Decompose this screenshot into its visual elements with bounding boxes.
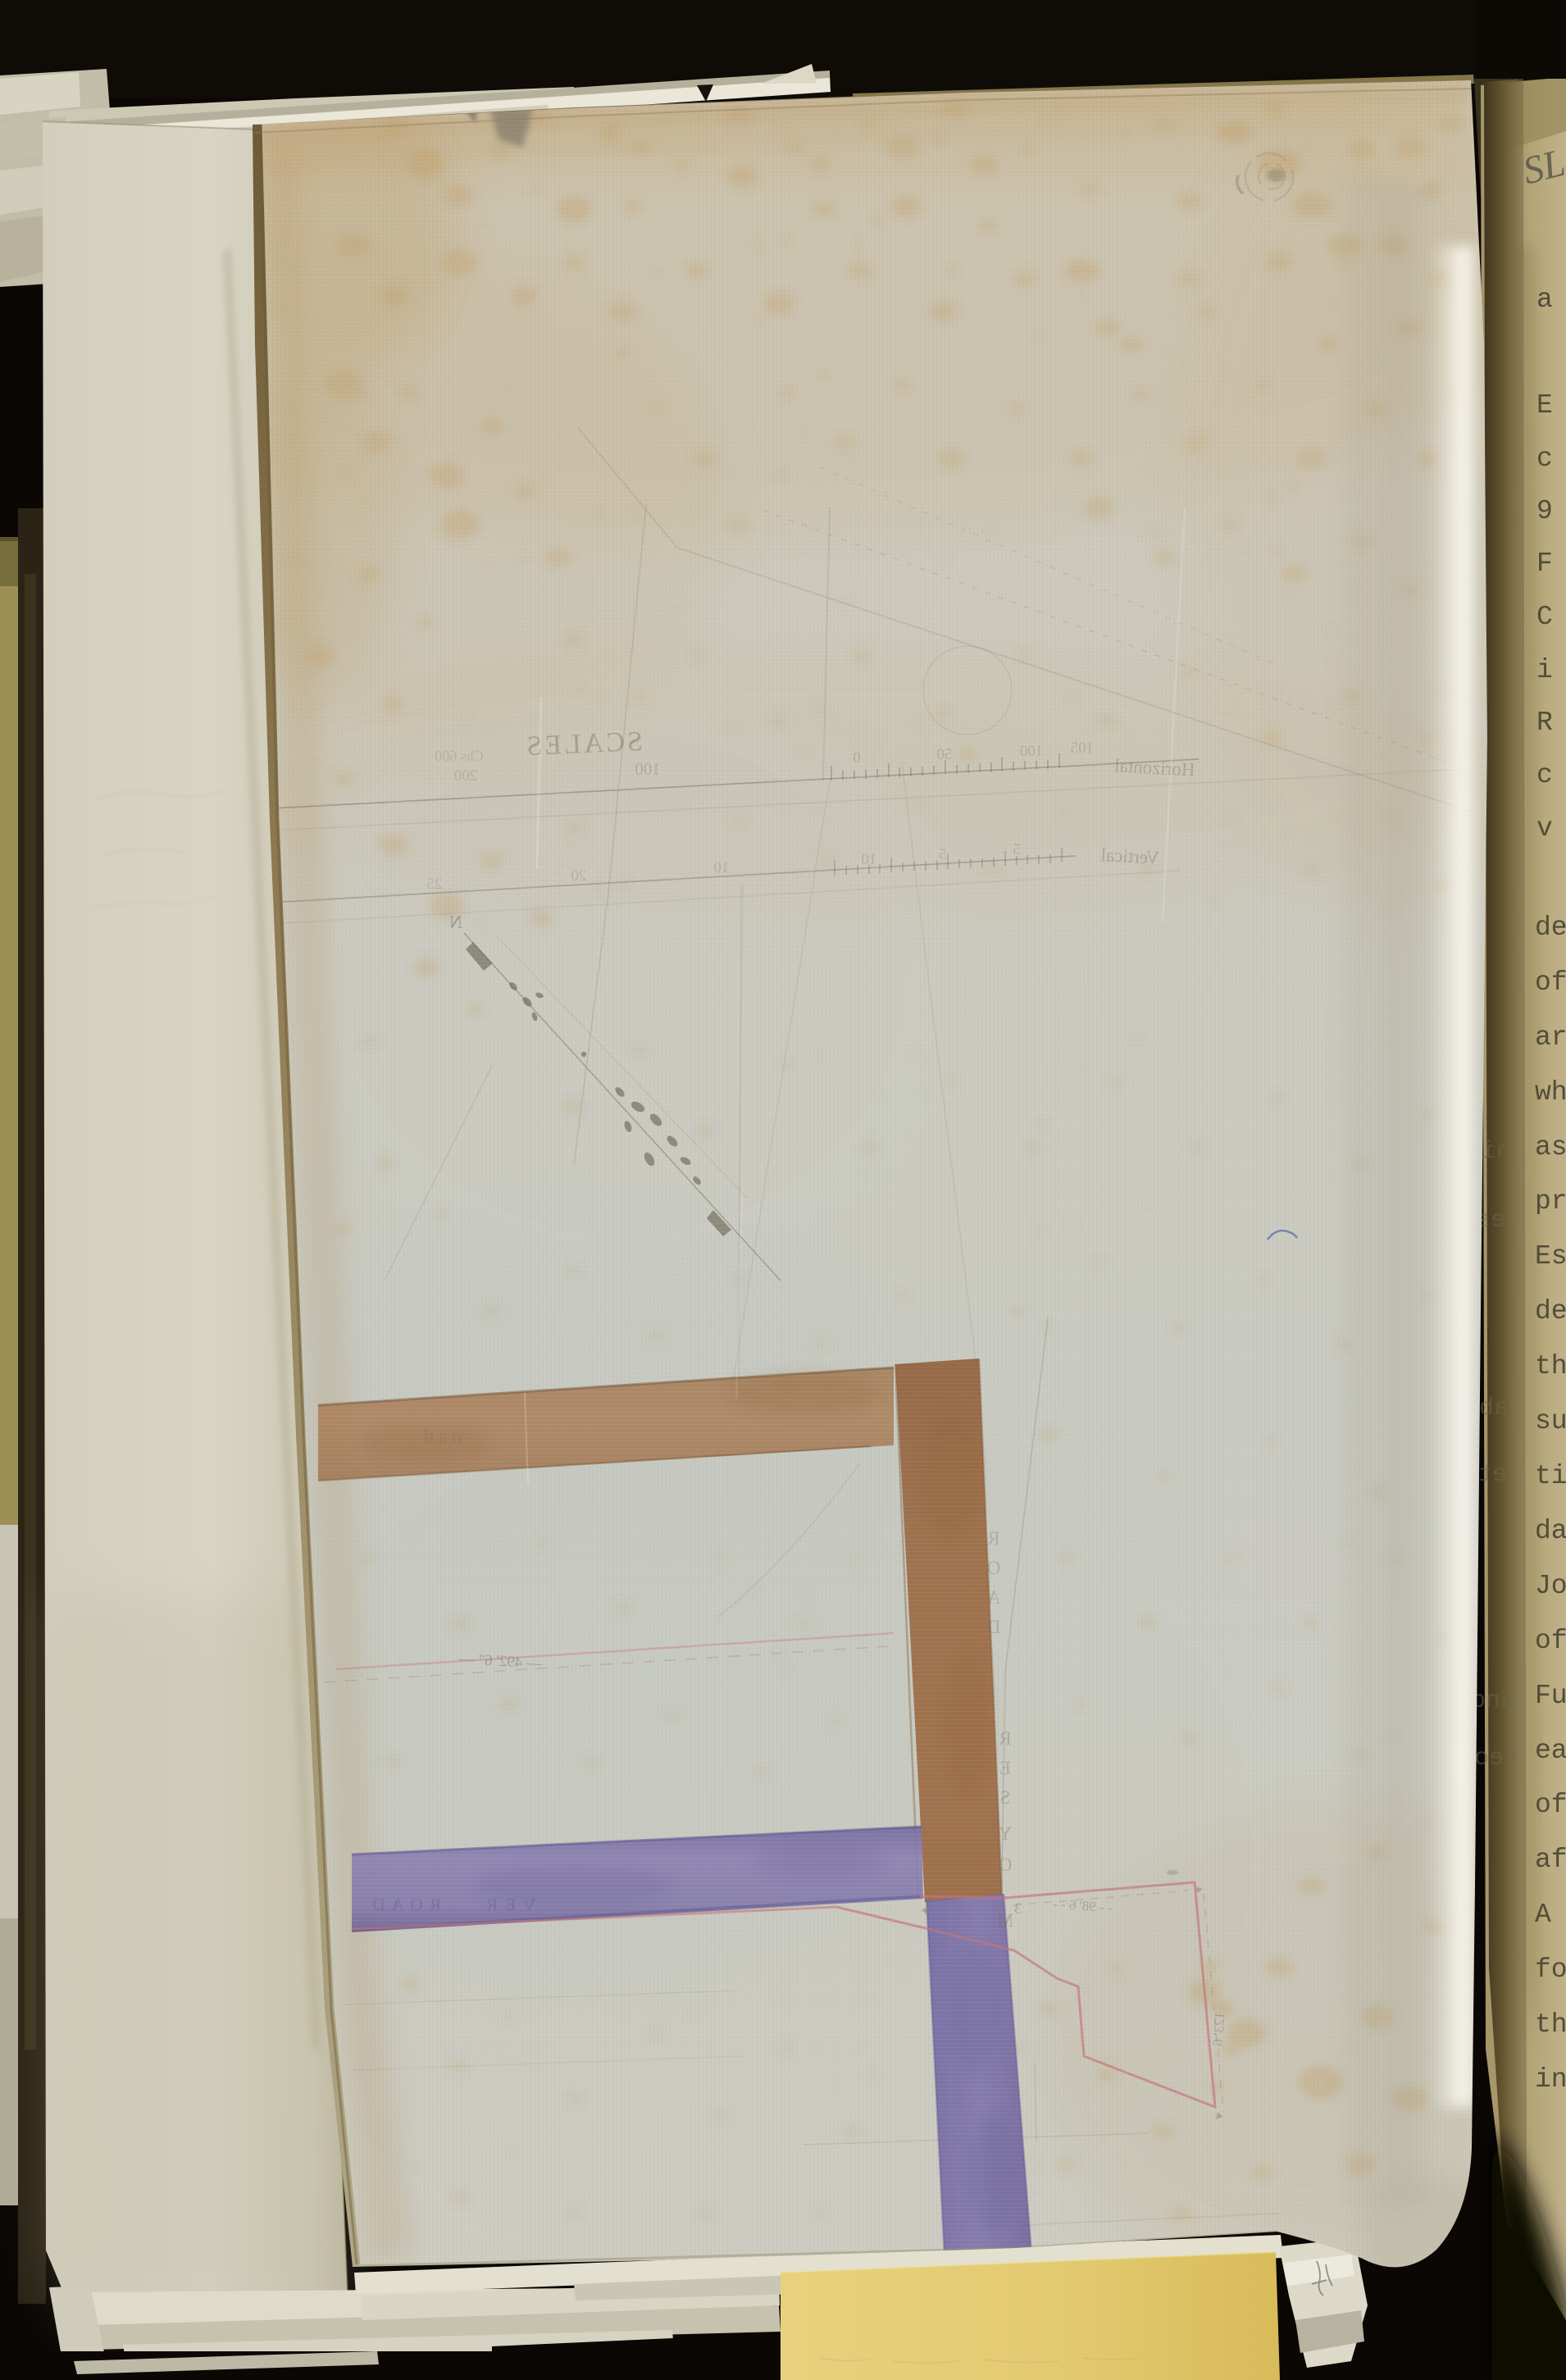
- svg-text:th: th: [1535, 2009, 1566, 2040]
- svg-text:F: F: [1536, 548, 1553, 579]
- svg-text:ti: ti: [1535, 1461, 1566, 1491]
- svg-text:a: a: [1536, 284, 1553, 315]
- svg-text:da: da: [1535, 1516, 1566, 1546]
- svg-text:C: C: [1536, 602, 1553, 632]
- svg-text:as: as: [1535, 1132, 1566, 1163]
- svg-text:de: de: [1535, 1296, 1566, 1327]
- svg-text:E: E: [1536, 390, 1553, 421]
- svg-text:pr: pr: [1535, 1186, 1566, 1217]
- svg-text:ni: ni: [1482, 1138, 1511, 1166]
- svg-text:of: of: [1535, 1626, 1566, 1656]
- svg-text:of: of: [1535, 967, 1566, 998]
- svg-text:R: R: [1536, 708, 1553, 738]
- svg-text:Jo: Jo: [1535, 1571, 1566, 1601]
- svg-text:ea: ea: [1535, 1736, 1566, 1766]
- svg-text:fo: fo: [1535, 1955, 1566, 1985]
- svg-text:Es: Es: [1535, 1241, 1566, 1272]
- svg-text:ab: ab: [1479, 1395, 1509, 1422]
- svg-text:Fu: Fu: [1535, 1681, 1566, 1711]
- svg-text:et: et: [1477, 1461, 1507, 1489]
- svg-text:de: de: [1535, 912, 1566, 943]
- svg-text:th: th: [1535, 1351, 1566, 1381]
- svg-text:A N: A N: [1535, 1900, 1566, 1930]
- svg-text:wh: wh: [1535, 1077, 1566, 1108]
- svg-text:i: i: [1536, 655, 1553, 685]
- svg-text:and: and: [1471, 1687, 1515, 1715]
- svg-text:su: su: [1535, 1406, 1566, 1436]
- svg-text:c: c: [1536, 444, 1553, 474]
- svg-text:v: v: [1536, 813, 1553, 844]
- svg-text:in: in: [1535, 2064, 1566, 2095]
- svg-text:ar: ar: [1535, 1022, 1566, 1053]
- svg-text:c: c: [1536, 760, 1553, 790]
- svg-text:of: of: [1535, 1790, 1566, 1820]
- svg-text:af: af: [1535, 1845, 1566, 1875]
- svg-text:9: 9: [1536, 496, 1553, 526]
